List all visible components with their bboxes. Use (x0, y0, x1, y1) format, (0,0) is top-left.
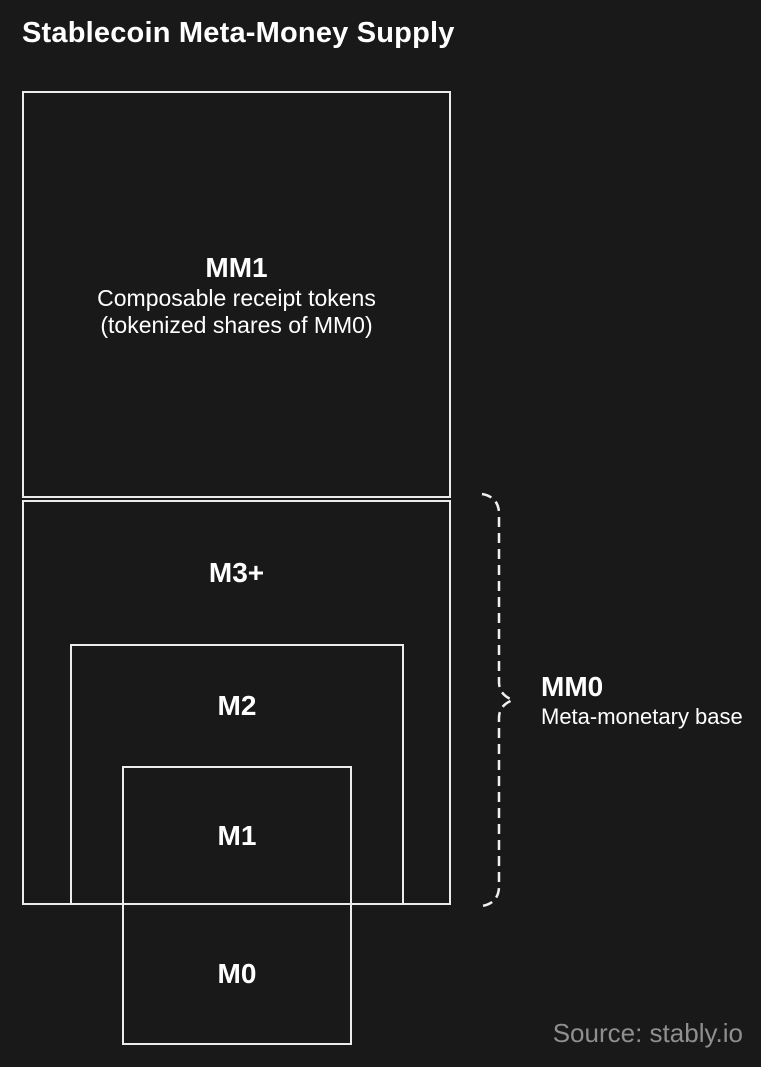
m1-text-block: M1 (124, 768, 350, 903)
m0-text-block: M0 (124, 905, 350, 1043)
mm1-desc-line2: (tokenized shares of MM0) (100, 312, 372, 339)
m3-label-strip: M3+ (24, 502, 449, 644)
mm0-sublabel: Meta-monetary base (541, 703, 743, 730)
m1-label: M1 (218, 819, 257, 853)
diagram-canvas: Stablecoin Meta-Money Supply MM1 Composa… (0, 0, 761, 1067)
m1-box: M1 (122, 766, 352, 905)
mm1-label: MM1 (205, 251, 267, 285)
mm1-box: MM1 Composable receipt tokens (tokenized… (22, 91, 451, 498)
page-title: Stablecoin Meta-Money Supply (22, 17, 455, 50)
m3-label: M3+ (209, 556, 264, 590)
m0-label: M0 (218, 957, 257, 991)
m2-label-strip: M2 (72, 646, 402, 766)
m0-box: M0 (122, 903, 352, 1045)
source-note: Source: stably.io (553, 1018, 743, 1049)
mm1-text-block: MM1 Composable receipt tokens (tokenized… (24, 93, 449, 496)
m2-label: M2 (218, 689, 257, 723)
mm1-desc-line1: Composable receipt tokens (97, 285, 376, 312)
mm0-annotation: MM0 Meta-monetary base (541, 670, 743, 730)
mm0-label: MM0 (541, 670, 743, 703)
brace-icon (470, 485, 530, 915)
